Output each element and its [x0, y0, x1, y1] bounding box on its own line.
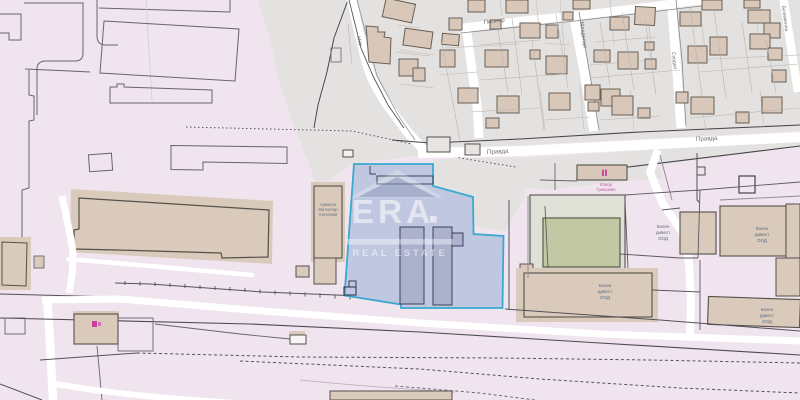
svg-text:дивест: дивест: [755, 232, 769, 237]
svg-text:ООД: ООД: [600, 295, 610, 300]
svg-text:REAL ESTATE: REAL ESTATE: [352, 248, 447, 259]
svg-text:ООД: ООД: [762, 319, 772, 324]
svg-text:Кален: Кален: [599, 283, 612, 288]
svg-text:Грижован: Грижован: [596, 187, 616, 192]
svg-text:Кален: Кален: [756, 226, 769, 231]
svg-text:дивест: дивест: [598, 289, 612, 294]
svg-text:ООД: ООД: [757, 238, 767, 243]
svg-text:Хателиев: Хателиев: [319, 212, 338, 217]
svg-text:дивест: дивест: [656, 230, 670, 235]
svg-text:Кален: Кален: [657, 224, 670, 229]
svg-text:дивест: дивест: [760, 313, 774, 318]
svg-text:ERA: ERA: [352, 194, 435, 231]
svg-text:Правда: Правда: [696, 135, 718, 143]
svg-text:ООД: ООД: [658, 236, 668, 241]
svg-text:Кален: Кален: [761, 307, 774, 312]
svg-text:Правда: Правда: [487, 148, 509, 156]
